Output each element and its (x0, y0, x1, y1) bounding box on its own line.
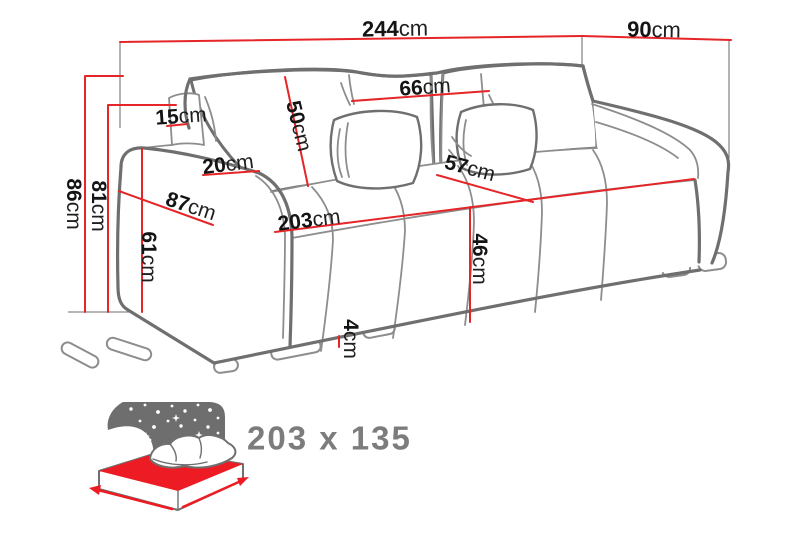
label-back-height: 81cm (88, 180, 111, 231)
label-total-height: 86cm (63, 178, 86, 229)
sofa-dimension-diagram: 244cm 90cm 86cm 81cm 61cm 15cm 20cm 87cm… (0, 0, 800, 533)
label-back-cushion-width: 66cm (399, 74, 452, 101)
pillow-left (331, 111, 422, 188)
sleeping-area-size: 203 x 135 (247, 420, 412, 457)
label-seat-height: 46cm (469, 233, 492, 284)
label-total-width: 244cm (362, 15, 428, 41)
label-total-depth: 90cm (627, 16, 681, 42)
sleeping-function-icon: 203 x 135 (89, 402, 412, 510)
diagram-canvas: 244cm 90cm 86cm 81cm 61cm 15cm 20cm 87cm… (0, 0, 800, 533)
label-backrest-top-width: 15cm (155, 103, 208, 130)
label-leg-height: 4cm (340, 319, 363, 359)
label-armrest-height: 61cm (138, 231, 161, 282)
dim-line-total-width (120, 36, 582, 42)
